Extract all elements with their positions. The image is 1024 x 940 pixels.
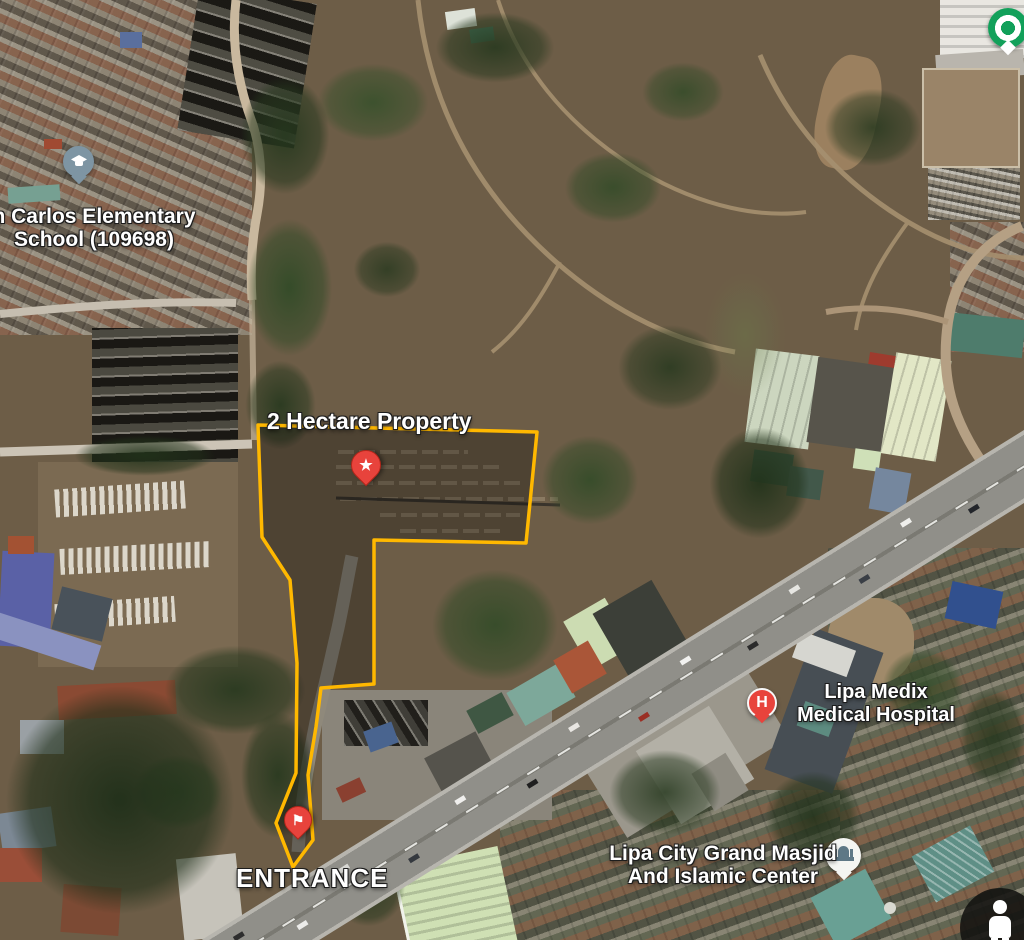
masjid-label-line1: Lipa City Grand Masjid xyxy=(590,842,856,865)
masjid-label[interactable]: Lipa City Grand Masjid And Islamic Cente… xyxy=(590,842,856,888)
school-label-line1: n Carlos Elementary xyxy=(0,205,202,228)
property-boundary[interactable] xyxy=(258,425,537,867)
school-label-line2: School (109698) xyxy=(0,228,202,251)
property-boundary-layer xyxy=(0,0,1024,940)
star-icon: ★ xyxy=(352,451,380,479)
satellite-map[interactable]: n Carlos Elementary School (109698) 2 He… xyxy=(0,0,1024,940)
graduation-cap-icon xyxy=(75,162,83,166)
hospital-label-line1: Lipa Medix xyxy=(778,681,974,704)
school-label[interactable]: n Carlos Elementary School (109698) xyxy=(0,205,202,251)
pegman-icon xyxy=(993,900,1007,914)
green-poi-pin[interactable] xyxy=(988,8,1024,48)
entrance-label: ENTRANCE xyxy=(236,863,388,894)
masjid-label-line2: And Islamic Center xyxy=(590,865,856,888)
flag-icon: ⚑ xyxy=(285,807,311,833)
hospital-label-line2: Medical Hospital xyxy=(778,704,974,727)
pegman-icon xyxy=(989,916,1011,938)
hospital-h-icon: H xyxy=(749,690,775,716)
hospital-label[interactable]: Lipa Medix Medical Hospital xyxy=(778,681,974,727)
hospital-pin[interactable]: H xyxy=(747,688,777,718)
school-pin[interactable] xyxy=(63,146,94,177)
property-label: 2 Hectare Property xyxy=(267,408,472,435)
